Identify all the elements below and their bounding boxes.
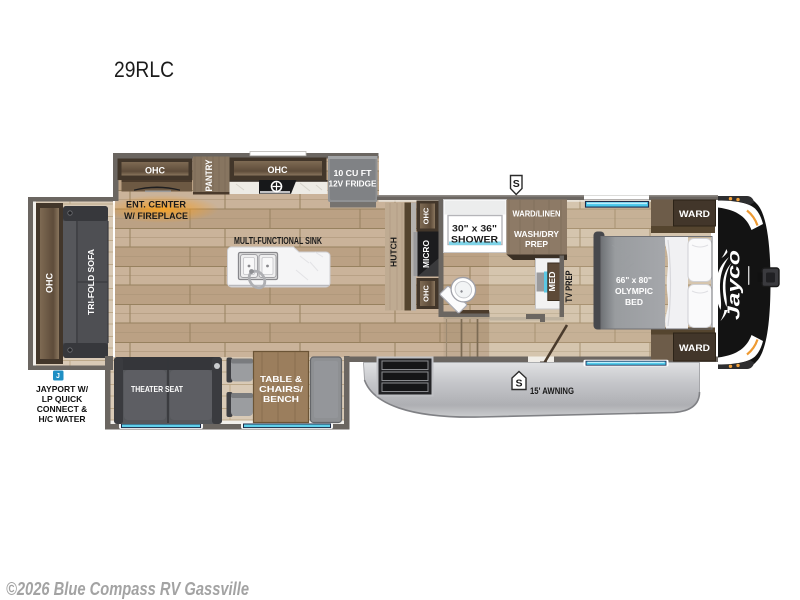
svg-text:WARD/LINEN: WARD/LINEN	[513, 209, 561, 219]
svg-text:OHC: OHC	[268, 165, 289, 175]
svg-text:TRI-FOLD SOFA: TRI-FOLD SOFA	[86, 249, 96, 315]
svg-text:J: J	[56, 373, 60, 380]
svg-text:OLYMPIC: OLYMPIC	[615, 286, 653, 296]
svg-text:SHOWER: SHOWER	[451, 235, 498, 246]
svg-text:BED: BED	[625, 297, 643, 307]
svg-text:12V FRIDGE: 12V FRIDGE	[329, 179, 377, 189]
svg-text:OHC: OHC	[45, 273, 55, 294]
svg-text:29RLC: 29RLC	[114, 57, 174, 82]
svg-text:TABLE &: TABLE &	[260, 374, 302, 384]
svg-text:PANTRY: PANTRY	[204, 159, 214, 191]
svg-text:10 CU FT: 10 CU FT	[334, 168, 373, 178]
svg-text:MICRO: MICRO	[421, 240, 431, 268]
svg-text:H/C WATER: H/C WATER	[38, 414, 85, 424]
svg-text:BENCH: BENCH	[263, 394, 299, 404]
svg-text:30" x 36": 30" x 36"	[452, 224, 497, 234]
svg-text:©2026 Blue Compass RV Gassvill: ©2026 Blue Compass RV Gassville	[6, 578, 249, 599]
svg-text:HUTCH: HUTCH	[389, 237, 399, 267]
svg-text:JAYPORT W/: JAYPORT W/	[36, 384, 89, 394]
svg-text:15' AWNING: 15' AWNING	[530, 386, 574, 397]
svg-text:W/ FIREPLACE: W/ FIREPLACE	[124, 211, 189, 222]
svg-text:OHC: OHC	[145, 166, 166, 176]
svg-text:PREP: PREP	[525, 239, 548, 249]
svg-text:S: S	[515, 378, 522, 390]
svg-text:S: S	[513, 178, 520, 190]
svg-text:LP QUICK: LP QUICK	[42, 394, 83, 404]
svg-text:CHAIRS/: CHAIRS/	[259, 384, 304, 394]
svg-text:MED: MED	[548, 271, 557, 291]
svg-text:OHC: OHC	[422, 285, 431, 302]
svg-text:THEATER SEAT: THEATER SEAT	[131, 384, 184, 394]
svg-text:CONNECT &: CONNECT &	[37, 404, 88, 414]
svg-text:WARD: WARD	[679, 343, 710, 353]
svg-text:ENT. CENTER: ENT. CENTER	[126, 200, 186, 211]
svg-text:TV PREP: TV PREP	[564, 271, 574, 303]
svg-text:WASH/DRY: WASH/DRY	[514, 229, 559, 239]
svg-text:OHC: OHC	[422, 207, 431, 224]
svg-text:WARD: WARD	[679, 209, 710, 219]
svg-text:66" x 80": 66" x 80"	[616, 275, 652, 285]
svg-text:MULTI-FUNCTIONAL SINK: MULTI-FUNCTIONAL SINK	[234, 236, 323, 247]
